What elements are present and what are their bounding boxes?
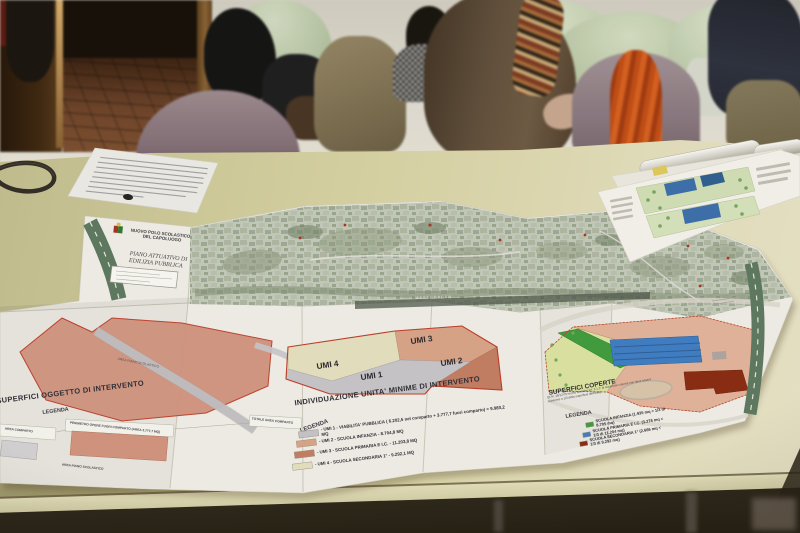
unfolded-masterplan-sheet xyxy=(0,201,793,493)
power-cable xyxy=(0,163,54,191)
document-sheet xyxy=(68,148,218,213)
photo-scene: NUOVO POLO SCOLASTICO DEL CAPOLUOGO PIAN… xyxy=(0,0,800,533)
primaria-swatch xyxy=(582,431,591,437)
infanzia-swatch xyxy=(585,422,594,428)
legend-swatch-grey xyxy=(0,440,37,460)
umi-1-swatch xyxy=(298,429,319,438)
secondaria-swatch xyxy=(579,441,588,447)
